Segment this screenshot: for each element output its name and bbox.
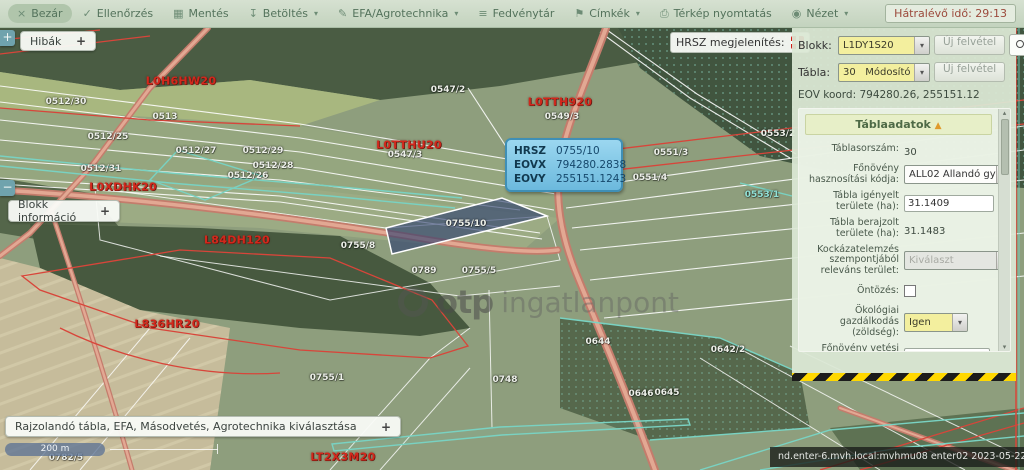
parcel-label: 0755/8 [341, 241, 376, 251]
tooltip-row-value: 794280.2838 [556, 158, 626, 172]
block-label: LT2X3M20 [310, 451, 375, 464]
panel-scrollbar[interactable]: ▴ ▾ [998, 109, 1010, 351]
parcel-label: 0644 [585, 337, 610, 347]
menu-item-label: Mentés [189, 7, 229, 20]
new-record-button[interactable]: Új felvétel [934, 35, 1005, 55]
field-row-ontozes: Öntözés: [803, 282, 994, 301]
select-value: Kiválaszt [905, 255, 996, 266]
chevron-down-icon: ▾ [844, 9, 848, 18]
menu-item-fedvenytar[interactable]: ≡Fedvénytár [469, 4, 563, 23]
blokk-select[interactable]: L1DY1S20 ▾ [838, 36, 930, 55]
chevron-down-icon[interactable]: ▾ [952, 314, 967, 331]
tabla-select-value: 30 Módosító [839, 67, 914, 78]
field-row-tabla-igenyelt-terulet: Tábla igényelt területe (ha): [803, 191, 994, 213]
map-scale-line [110, 449, 218, 450]
tooltip-row-label: EOVY [514, 172, 556, 186]
menu-item-nezet[interactable]: ◉Nézet▾ [783, 4, 857, 23]
status-bar: nd.enter-6.mvh.local:mvhmu08 enter02 202… [770, 447, 1024, 467]
parcel-label: 0755/10 [446, 219, 487, 229]
menu-item-label: Fedvénytár [493, 7, 555, 20]
chevron-down-icon: ▾ [636, 9, 640, 18]
field-label: Főnövény hasznosítási kódja: [803, 164, 899, 186]
parcel-label: 0512/25 [88, 132, 129, 142]
tooltip-row: EOVY255151.1243 [514, 172, 614, 186]
otp-logo-icon [398, 287, 428, 317]
watermark-suffix: ingatlanpont [501, 286, 679, 319]
menu-item-ellenorzes[interactable]: ✓Ellenőrzés [74, 4, 163, 23]
parcel-label: 0513 [152, 112, 177, 122]
field-label: Táblasorszám: [803, 144, 899, 155]
chevron-down-icon: ▾ [314, 9, 318, 18]
menu-item-cimkek[interactable]: ⚑Címkék▾ [565, 4, 648, 23]
menu-item-mentes[interactable]: ▦Mentés [164, 4, 237, 23]
select-value: ALL02 Állandó gyep (k [905, 169, 996, 180]
field-row-tabla-berajzolt-terulet: Tábla berajzolt területe (ha):31.1483 [803, 218, 994, 240]
field-row-tablasorszam: Táblasorszám:30 [803, 140, 994, 159]
panel-hazard-stripe [792, 373, 1016, 381]
parcel-info-tooltip: HRSZ0755/10EOVX794280.2838EOVY255151.124… [505, 138, 623, 192]
menu-bar: ×Bezár✓Ellenőrzés▦Mentés↧Betöltés▾✎EFA/A… [0, 0, 1024, 28]
field-fonoveny-hasznositasi-kod[interactable]: ALL02 Állandó gyep (k▾ [904, 165, 998, 184]
tabla-select[interactable]: 30 Módosító ▾ [838, 63, 930, 82]
errors-panel-label: Hibák [30, 35, 61, 48]
field-label: Öntözés: [803, 286, 899, 297]
chevron-down-icon[interactable]: ▾ [914, 37, 929, 54]
parcel-label: 0512/27 [176, 146, 217, 156]
blokk-label: Blokk: [798, 39, 834, 52]
block-info-label: Blokk információ [18, 198, 90, 224]
parcel-label: 0646 [628, 389, 653, 399]
field-tabla-berajzolt-terulet: 31.1483 [904, 226, 945, 237]
errors-panel-button[interactable]: Hibák + [20, 31, 96, 51]
menu-item-label: Betöltés [263, 7, 308, 20]
watermark-brand: otp [436, 283, 493, 321]
field-kockazatelemzes-relevans-terulet[interactable]: Kiválaszt▾ [904, 251, 998, 270]
hrsz-display-toggle[interactable]: HRSZ megjelenítés: [670, 32, 810, 53]
printer-icon: ⎙ [660, 7, 669, 21]
save-icon: ▦ [173, 7, 183, 20]
block-label: L836HR20 [134, 318, 199, 331]
menu-item-label: Bezár [31, 7, 62, 20]
warning-triangle-icon: ▲ [935, 121, 942, 131]
panel-scroll-area: Táblaadatok ▲ Táblasorszám:30Főnövény ha… [798, 108, 1011, 352]
parcel-label: 0512/28 [253, 161, 294, 171]
app-root: ×Bezár✓Ellenőrzés▦Mentés↧Betöltés▾✎EFA/A… [0, 0, 1024, 470]
search-icon [1016, 40, 1024, 48]
tooltip-row-value: 0755/10 [556, 144, 614, 158]
parcel-label: 0549/3 [545, 112, 580, 122]
parcel-label: 0512/26 [228, 171, 269, 181]
field-tablasorszam: 30 [904, 147, 917, 158]
field-row-fonoveny-vetesi-idopont: Főnövény vetési időpontja: [803, 344, 994, 351]
field-label: Tábla igényelt területe (ha): [803, 191, 899, 213]
map-scale-bar: 200 m [5, 443, 105, 456]
table-data-header[interactable]: Táblaadatok ▲ [805, 114, 992, 135]
expand-plus-icon[interactable]: + [371, 420, 391, 434]
menu-item-label: Címkék [589, 7, 630, 20]
parcel-label: 0547/3 [388, 150, 423, 160]
scroll-down-icon[interactable]: ▾ [1003, 343, 1007, 351]
menu-item-label: EFA/Agrotechnika [352, 7, 448, 20]
menu-item-label: Ellenőrzés [97, 7, 153, 20]
scrollbar-thumb[interactable] [1001, 119, 1009, 175]
menu-item-efa-agrotechnika[interactable]: ✎EFA/Agrotechnika▾ [329, 4, 467, 23]
blokk-select-value: L1DY1S20 [839, 40, 914, 51]
tooltip-row: EOVX794280.2838 [514, 158, 614, 172]
parcel-label: 0551/3 [654, 148, 689, 158]
parcel-label: 0645 [654, 388, 679, 398]
field-row-fonoveny-hasznositasi-kod: Főnövény hasznosítási kódja:ALL02 Álland… [803, 164, 994, 186]
block-label: L0TTH920 [528, 96, 593, 109]
draw-table-bar-label: Rajzolandó tábla, EFA, Másodvetés, Agrot… [15, 420, 357, 433]
parcel-label: 0789 [411, 266, 436, 276]
menu-item-label: Térkép nyomtatás [674, 7, 772, 20]
block-label: L84DH120 [204, 234, 270, 247]
layers-icon: ≡ [478, 7, 487, 20]
eov-coordinates: EOV koord: 794280.26, 255151.12 [798, 89, 1010, 101]
table-data-header-label: Táblaadatok [855, 118, 930, 131]
remaining-time-badge: Hátralévő idő: 29:13 [885, 4, 1016, 23]
menu-item-betoltes[interactable]: ↧Betöltés▾ [240, 4, 327, 23]
parcel-label: 0512/29 [243, 146, 284, 156]
eye-icon: ◉ [792, 7, 802, 20]
map-collapse-button[interactable]: − [0, 180, 15, 196]
close-icon: × [17, 7, 26, 20]
parcel-label: 0512/31 [81, 164, 122, 174]
map-scale-tick [217, 444, 218, 454]
field-label: Kockázatelemzés szempontjából releváns t… [803, 245, 899, 278]
scroll-up-icon[interactable]: ▴ [1003, 109, 1007, 117]
field-label: Ökológiai gazdálkodás (zöldség): [803, 306, 899, 339]
block-info-button[interactable]: Blokk információ + [8, 200, 120, 222]
menu-item-label: Nézet [806, 7, 838, 20]
tooltip-row-label: EOVX [514, 158, 556, 172]
parcel-label: 0553/1 [745, 190, 780, 200]
parcel-label: 0755/5 [462, 266, 497, 276]
check-icon: ✓ [83, 7, 92, 20]
field-label: Tábla berajzolt területe (ha): [803, 218, 899, 240]
pencil-icon: ✎ [338, 7, 347, 20]
parcel-label: 0755/1 [310, 373, 345, 383]
menu-item-terkep-nyomtatas[interactable]: ⎙Térkép nyomtatás [651, 4, 781, 24]
map-expand-button[interactable]: + [0, 30, 15, 46]
field-ontozes[interactable] [904, 285, 916, 297]
search-button[interactable] [1009, 34, 1024, 56]
parcel-label: 0748 [492, 375, 517, 385]
field-row-okologiai-gazdalkodas: Ökológiai gazdálkodás (zöldség):Igen▾ [803, 306, 994, 339]
parcel-label: 0547/2 [431, 85, 466, 95]
parcel-label: 0642/2 [711, 345, 746, 355]
tooltip-row: HRSZ0755/10 [514, 144, 614, 158]
otp-watermark: otp ingatlanpont [398, 283, 679, 321]
field-okologiai-gazdalkodas[interactable]: Igen▾ [904, 313, 968, 332]
parcel-label: 0512/30 [46, 97, 87, 107]
new-record-button[interactable]: Új felvétel [934, 62, 1005, 82]
chevron-down-icon: ▾ [454, 9, 458, 18]
tag-icon: ⚑ [574, 7, 584, 20]
tooltip-row-label: HRSZ [514, 144, 556, 158]
map-area[interactable]: otp ingatlanpont L0H6HW20L0TTH920L0TTHU2… [0, 28, 1024, 470]
hrsz-toggle-label: HRSZ megjelenítés: [676, 36, 785, 49]
menu-item-bezar[interactable]: ×Bezár [8, 4, 72, 23]
tabla-label: Tábla: [798, 66, 834, 79]
select-value: Igen [905, 317, 952, 328]
attribute-panel: Blokk: L1DY1S20 ▾ Új felvétel Tábla: 30 … [792, 28, 1016, 381]
field-label: Főnövény vetési időpontja: [803, 344, 899, 351]
parcel-label: 0551/4 [633, 173, 668, 183]
chevron-down-icon[interactable]: ▾ [914, 64, 929, 81]
parcel-label: 0553/2 [761, 129, 796, 139]
block-label: L0H6HW20 [146, 75, 217, 88]
field-row-kockazatelemzes-relevans-terulet: Kockázatelemzés szempontjából releváns t… [803, 245, 994, 278]
block-label: L0XDHK20 [89, 181, 157, 194]
tooltip-row-value: 255151.1243 [556, 172, 626, 186]
field-tabla-igenyelt-terulet[interactable] [904, 195, 994, 212]
field-fonoveny-vetesi-idopont[interactable] [904, 348, 990, 351]
expand-plus-icon[interactable]: + [90, 204, 110, 218]
draw-table-bar[interactable]: Rajzolandó tábla, EFA, Másodvetés, Agrot… [5, 416, 401, 437]
expand-plus-icon[interactable]: + [66, 34, 86, 48]
load-icon: ↧ [249, 7, 258, 20]
